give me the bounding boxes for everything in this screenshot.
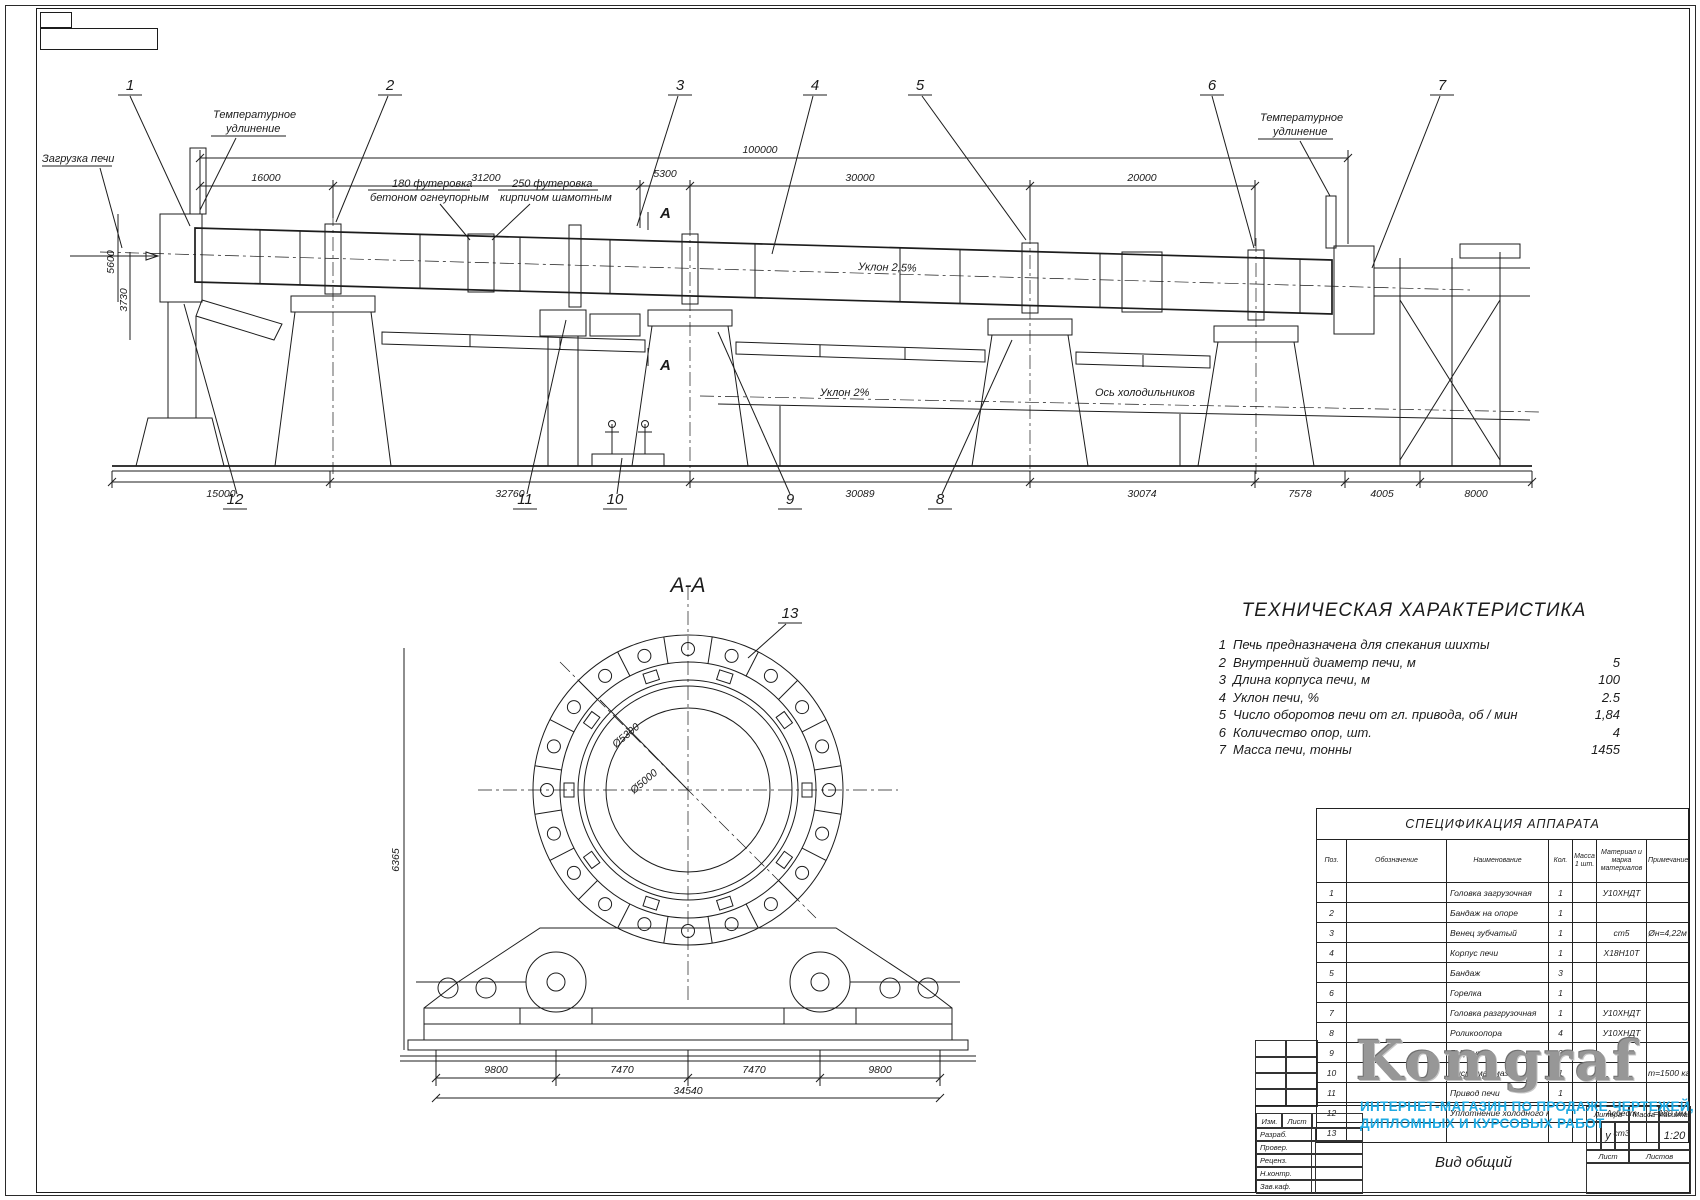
dim-sec-9800-left: 9800 (484, 1064, 508, 1076)
section-mark-top: А (659, 205, 671, 222)
discharge-head (1326, 196, 1530, 466)
tagline-line-1: ИНТЕРНЕТ-МАГАЗИН ПО ПРОДАЖЕ ЧЕРТЕЖЕЙ, (1360, 1098, 1694, 1115)
section-mark-bottom: А (659, 357, 671, 374)
balloon-13: 13 (782, 605, 799, 622)
balloon-4: 4 (811, 77, 819, 94)
section-title: А-А (668, 574, 705, 597)
balloon-2: 2 (385, 77, 395, 94)
tb-doc-title: Вид общий (1361, 1154, 1586, 1171)
label-futer-250-2: кирпичом шамотным (500, 192, 612, 204)
lubrication-unit (592, 421, 664, 467)
spec-col-mat: Материал и марка материалов (1597, 840, 1647, 883)
dim-20000: 20000 (1126, 172, 1156, 184)
dim-dia-5300: Ø5300 (609, 721, 642, 751)
gear-ring (569, 225, 581, 307)
spec-header-row: Поз. Обозначение Наименование Кол. Масса… (1317, 840, 1689, 883)
spec-col-mass: Масса 1 шт. (1573, 840, 1597, 883)
spec-row: 3Венец зубчатый1ст5Øн=4,22м (1317, 923, 1689, 943)
dim-31200: 31200 (471, 172, 500, 184)
elevation-dimensions: 100000 16000 31200 5300 30000 20000 1500… (105, 144, 1536, 500)
balloon-callouts: 1 2 3 4 5 6 7 12 11 10 9 8 13 (118, 77, 1454, 658)
label-futer-180-2: бетоном огнеупорным (370, 192, 489, 204)
balloon-1: 1 (126, 77, 134, 94)
label-futer-180-1: 180 футеровка (392, 178, 472, 190)
spec-row: 6Горелка1 (1317, 983, 1689, 1003)
dim-total-length: 100000 (742, 144, 777, 156)
label-temp-right-1: Температурное (1260, 112, 1343, 124)
label-os-holodilnikov: Ось холодильников (1095, 387, 1195, 399)
tech-item: 1Печь предназначена для спекания шихты (1208, 636, 1620, 654)
dim-32760: 32760 (495, 488, 524, 500)
label-uklon-2: Уклон 2% (819, 387, 870, 399)
spec-title: СПЕЦИФИКАЦИЯ АППАРАТА (1317, 809, 1689, 840)
kiln-elevation-view: А А (70, 148, 1540, 474)
spec-col-qty: Кол. (1549, 840, 1573, 883)
balloon-8: 8 (936, 491, 945, 508)
dim-7578: 7578 (1288, 488, 1312, 500)
balloon-5: 5 (916, 77, 925, 94)
dim-sec-6365: 6365 (390, 848, 402, 872)
dim-30000: 30000 (845, 172, 874, 184)
balloon-6: 6 (1208, 77, 1217, 94)
spec-col-oboz: Обозначение (1347, 840, 1447, 883)
spec-row: 7Головка разгрузочная1У10ХНДТ (1317, 1003, 1689, 1023)
shell-lattice-band (1122, 252, 1162, 312)
tb-zavkaf: Зав.каф. (1256, 1179, 1316, 1194)
spec-row: 4Корпус печи1Х18Н10Т (1317, 943, 1689, 963)
komgraf-logo: Komgraf (1356, 1028, 1638, 1093)
spec-col-pos: Поз. (1317, 840, 1347, 883)
label-temp-left-1: Температурное (213, 109, 296, 121)
label-futer-250-1: 250 футеровка (511, 178, 592, 190)
tech-title: ТЕХНИЧЕСКАЯ ХАРАКТЕРИСТИКА (1208, 600, 1620, 622)
tech-item: 2Внутренний диаметр печи, м5 (1208, 654, 1620, 672)
label-zagruzka: Загрузка печи (42, 153, 114, 165)
section-a-a: А-А Ø5300 Ø5000 (390, 574, 976, 1102)
drive-motor (590, 314, 640, 336)
tech-item: 5Число оборотов печи от гл. привода, об … (1208, 706, 1620, 724)
tech-item: 6Количество опор, шт.4 (1208, 724, 1620, 742)
blueprint-page: А А Загрузка печи Температурное удлинени… (0, 0, 1700, 1200)
dim-30074: 30074 (1127, 488, 1156, 500)
spec-row: 1Головка загрузочная1У10ХНДТ (1317, 883, 1689, 903)
label-uklon-shell: Уклон 2,5% (857, 261, 917, 275)
dim-sec-7470-left: 7470 (610, 1064, 634, 1076)
dim-dia-5000: Ø5000 (627, 767, 660, 797)
komgraf-tagline: ИНТЕРНЕТ-МАГАЗИН ПО ПРОДАЖЕ ЧЕРТЕЖЕЙ, ДИ… (1360, 1098, 1694, 1132)
dim-16000: 16000 (251, 172, 280, 184)
dim-sec-7470-right: 7470 (742, 1064, 766, 1076)
dim-15000: 15000 (206, 488, 235, 500)
dim-3730: 3730 (118, 288, 130, 312)
label-temp-right-2: удлинение (1272, 126, 1327, 138)
tech-item: 7Масса печи, тонны1455 (1208, 741, 1620, 759)
spec-col-name: Наименование (1447, 840, 1549, 883)
label-temp-left-2: удлинение (225, 123, 280, 135)
dim-5600: 5600 (105, 250, 117, 274)
dim-8000: 8000 (1464, 488, 1488, 500)
tech-item: 3Длина корпуса печи, м100 (1208, 671, 1620, 689)
dim-sec-9800-right: 9800 (868, 1064, 892, 1076)
spec-col-note: Примечание (1647, 840, 1689, 883)
dim-sec-total: 34540 (673, 1085, 702, 1097)
dim-5300: 5300 (653, 168, 677, 180)
balloon-10: 10 (607, 491, 624, 508)
dim-4005: 4005 (1370, 488, 1394, 500)
balloon-7: 7 (1438, 77, 1447, 94)
spec-row: 2Бандаж на опоре1 (1317, 903, 1689, 923)
lining-transition-band (468, 234, 494, 292)
technical-characteristics: ТЕХНИЧЕСКАЯ ХАРАКТЕРИСТИКА 1Печь предназ… (1208, 600, 1620, 759)
tagline-line-2: ДИПЛОМНЫХ И КУРСОВЫХ РАБОТ (1360, 1115, 1694, 1132)
dim-30089: 30089 (845, 488, 874, 500)
spec-row: 5Бандаж3 (1317, 963, 1689, 983)
balloon-3: 3 (676, 77, 685, 94)
tech-item: 4Уклон печи, %2.5 (1208, 689, 1620, 707)
